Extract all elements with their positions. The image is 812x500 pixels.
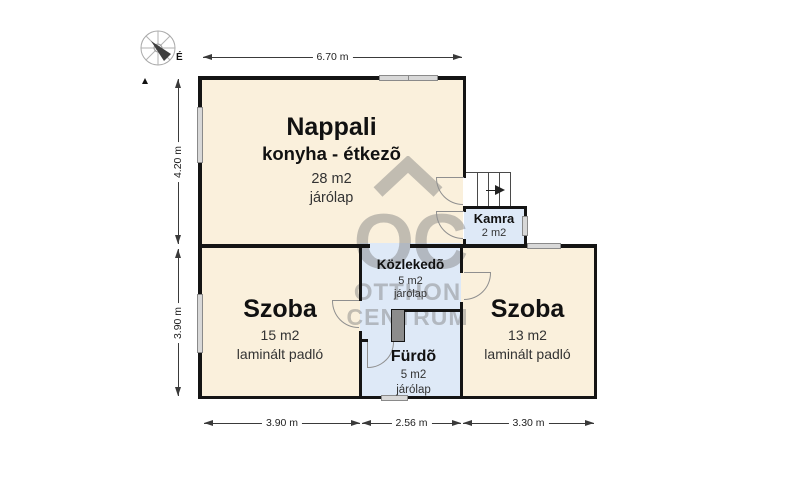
room-floor-type: laminált padló <box>461 345 594 363</box>
dimension-left-lower: 3.90 m <box>172 249 184 396</box>
dimension-value: 4.20 m <box>172 141 184 181</box>
wall <box>410 244 463 248</box>
window <box>408 75 438 81</box>
room-name: Fürdõ <box>367 347 460 366</box>
stair-step <box>477 173 478 206</box>
room-area: 15 m2 <box>200 325 360 345</box>
room-subtitle: konyha - étkezõ <box>200 142 463 166</box>
room-floor-type: járólap <box>360 288 461 301</box>
room-area: 28 m2 <box>200 169 463 189</box>
dimension-arrow-icon <box>175 387 181 396</box>
dimension-arrow-icon <box>452 420 461 426</box>
dimension-top: 6.70 m <box>203 51 462 63</box>
dimension-value: 3.90 m <box>262 417 302 429</box>
room-floor-type: laminált padló <box>200 345 360 363</box>
north-label: É <box>176 52 183 63</box>
wall <box>594 244 598 399</box>
dimension-value: 6.70 m <box>312 51 352 63</box>
wall <box>198 244 370 248</box>
wall <box>463 206 528 209</box>
dimension-arrow-icon <box>362 420 371 426</box>
dimension-arrow-icon <box>585 420 594 426</box>
floor-plan: OC OTTHON CENTRUM Napp <box>0 0 812 500</box>
room-name: Közlekedõ <box>360 256 461 273</box>
dimension-arrow-icon <box>203 54 212 60</box>
wall <box>463 239 467 248</box>
dimension-arrow-icon <box>351 420 360 426</box>
dimension-arrow-icon <box>453 54 462 60</box>
wall <box>404 309 463 312</box>
stair-wall <box>510 172 511 206</box>
room-floor-type: járólap <box>200 189 463 207</box>
room-name: Szoba <box>461 295 594 323</box>
dimension-value: 3.90 m <box>172 302 184 342</box>
window <box>379 75 409 81</box>
room-floor-type: járólap <box>367 383 460 397</box>
room-name: Szoba <box>200 295 360 323</box>
room-label-furdo: Fürdõ 5 m2 járólap <box>367 347 460 397</box>
room-area: 2 m2 <box>464 226 524 240</box>
dimension-bottom-right: 3.30 m <box>463 417 594 429</box>
dimension-bottom-left: 3.90 m <box>204 417 360 429</box>
door-leaf <box>436 211 464 212</box>
dimension-bottom-middle: 2.56 m <box>362 417 461 429</box>
compass-icon <box>137 27 179 69</box>
room-label-szoba-right: Szoba 13 m2 laminált padló <box>461 295 594 363</box>
room-area: 13 m2 <box>461 325 594 345</box>
room-label-kozlekedo: Közlekedõ 5 m2 járólap <box>360 256 461 301</box>
door-leaf <box>464 272 491 273</box>
room-area: 5 m2 <box>367 368 460 383</box>
dimension-arrow-icon <box>175 235 181 244</box>
north-tick-icon <box>142 78 148 84</box>
room-name: Kamra <box>464 211 524 226</box>
stair-direction-arrow-icon <box>495 185 505 195</box>
room-label-szoba-left: Szoba 15 m2 laminált padló <box>200 295 360 363</box>
dimension-value: 2.56 m <box>391 417 431 429</box>
dimension-left-upper: 4.20 m <box>172 79 184 244</box>
room-label-nappali: Nappali konyha - étkezõ 28 m2 járólap <box>200 112 463 207</box>
dimension-arrow-icon <box>204 420 213 426</box>
wall <box>463 76 467 178</box>
room-name: Nappali <box>200 112 463 142</box>
room-label-kamra: Kamra 2 m2 <box>464 211 524 240</box>
chimney <box>391 309 405 342</box>
window <box>527 243 561 249</box>
room-area: 5 m2 <box>360 274 461 288</box>
dimension-value: 3.30 m <box>508 417 548 429</box>
dimension-arrow-icon <box>463 420 472 426</box>
dimension-arrow-icon <box>175 79 181 88</box>
dimension-arrow-icon <box>175 249 181 258</box>
